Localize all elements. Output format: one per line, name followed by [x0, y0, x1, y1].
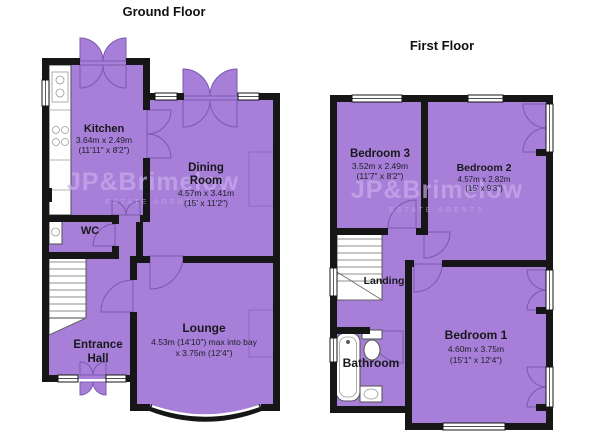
stairs-first — [337, 232, 382, 300]
dining-room-dims-metric: 4.57m x 3.41m — [178, 188, 234, 198]
kitchen-dims-metric: 3.64m x 2.49m — [76, 135, 132, 145]
ground-floor-plan: JP&Brimelow ESTATE AGENTS Ground Floor K… — [42, 4, 280, 418]
kitchen-label: Kitchen — [84, 123, 125, 135]
bathroom-sink-icon — [360, 386, 382, 402]
bedroom3-dims-imperial: (11'7" x 8'2") — [357, 171, 404, 181]
first-floor-plan: JP&Brimelow ESTATE AGENTS First Floor Be… — [330, 38, 553, 430]
dining-room-label-1: Dining — [188, 162, 224, 174]
dining-room-dims-imperial: (15' x 11'2") — [184, 198, 228, 208]
entrance-hall-label-2: Hall — [87, 353, 108, 365]
bedroom2-dims-metric: 4.57m x 2.82m — [458, 175, 511, 184]
first-floor-title: First Floor — [410, 38, 474, 53]
kitchen-dims-imperial: (11'11" x 8'2") — [78, 145, 129, 155]
bedroom1-dims-metric: 4.60m x 3.75m — [448, 344, 504, 354]
bedroom2-label: Bedroom 2 — [457, 162, 512, 174]
bedroom3-label: Bedroom 3 — [350, 148, 410, 160]
bedroom1-dims-imperial: (15'1" x 12'4") — [450, 355, 502, 365]
bedroom1-label: Bedroom 1 — [445, 328, 508, 342]
dining-room-label-2: Room — [190, 175, 223, 187]
bedroom3-dims-metric: 3.52m x 2.49m — [352, 161, 408, 171]
lounge-dims-imperial: x 3.75m (12'4") — [175, 348, 232, 358]
bedroom2-dims-imperial: (15' x 9'3") — [465, 184, 503, 193]
floorplan-canvas: JP&Brimelow ESTATE AGENTS Ground Floor K… — [0, 0, 600, 436]
bathroom-label: Bathroom — [343, 356, 400, 370]
entrance-hall-label-1: Entrance — [73, 339, 122, 351]
landing-label: Landing — [364, 275, 405, 287]
watermark-tagline-first: ESTATE AGENTS — [389, 207, 485, 214]
lounge-dims-metric: 4.53m (14'10") max into bay — [151, 337, 257, 347]
wc-sink-icon — [49, 220, 62, 244]
wc-label: WC — [81, 225, 99, 237]
lounge-label: Lounge — [182, 321, 226, 335]
ground-floor-title: Ground Floor — [122, 4, 205, 19]
floorplan-page: JP&Brimelow ESTATE AGENTS Ground Floor K… — [0, 0, 600, 436]
